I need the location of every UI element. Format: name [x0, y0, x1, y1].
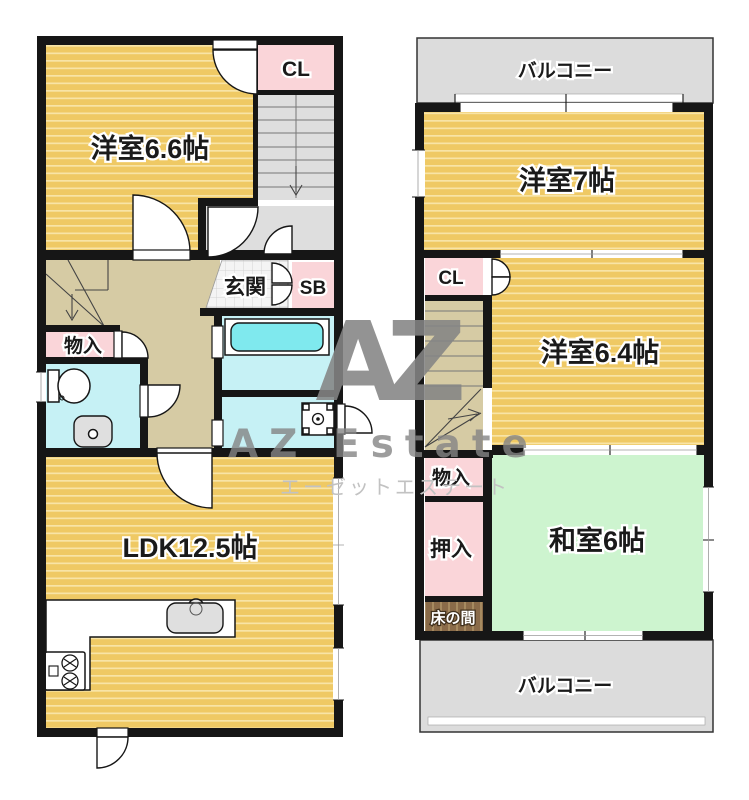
label-west-room-64: 洋室6.4帖: [541, 337, 660, 368]
door-slide-washroom: [212, 420, 223, 446]
toilet-icon: [48, 369, 90, 403]
label-ldk: LDK12.5帖: [122, 533, 257, 563]
washbasin-icon: [74, 416, 112, 447]
floor2-plan: バルコニー 洋室7帖 CL 洋室6.4帖 物入 押入 床の間 和室6帖 バルコニ…: [412, 38, 714, 732]
watermark-logo: AZ: [316, 298, 462, 426]
label-west-room-7: 洋室7帖: [519, 165, 615, 196]
label-monoiri-1f: 物入: [64, 334, 102, 357]
label-balcony-top: バルコニー: [518, 60, 613, 82]
floorplan: 洋室6.6帖 CL 玄関 SB 物入 LDK12.5帖: [0, 0, 749, 800]
stove-icon: [45, 652, 85, 690]
bathtub-icon: [225, 319, 329, 355]
floorplan-canvas: 洋室6.6帖 CL 玄関 SB 物入 LDK12.5帖: [0, 0, 749, 800]
label-washitsu: 和室6帖: [549, 525, 645, 556]
watermark-name-kana: エーゼットエステート: [280, 476, 510, 499]
door-slide-bathroom: [212, 326, 223, 358]
kitchen-sink-icon: [167, 599, 223, 633]
watermark-name: AZ Estate: [228, 422, 539, 467]
label-balcony-bottom: バルコニー: [518, 675, 613, 697]
label-cl-2f: CL: [438, 268, 464, 289]
label-oshiire: 押入: [430, 537, 472, 561]
label-sb: SB: [300, 278, 326, 299]
opening-cl-2f: [483, 258, 492, 295]
label-west-room-66: 洋室6.6帖: [91, 133, 210, 164]
label-genkan: 玄関: [224, 275, 266, 299]
label-tokonoma: 床の間: [430, 609, 475, 627]
label-cl-1f: CL: [282, 58, 310, 81]
